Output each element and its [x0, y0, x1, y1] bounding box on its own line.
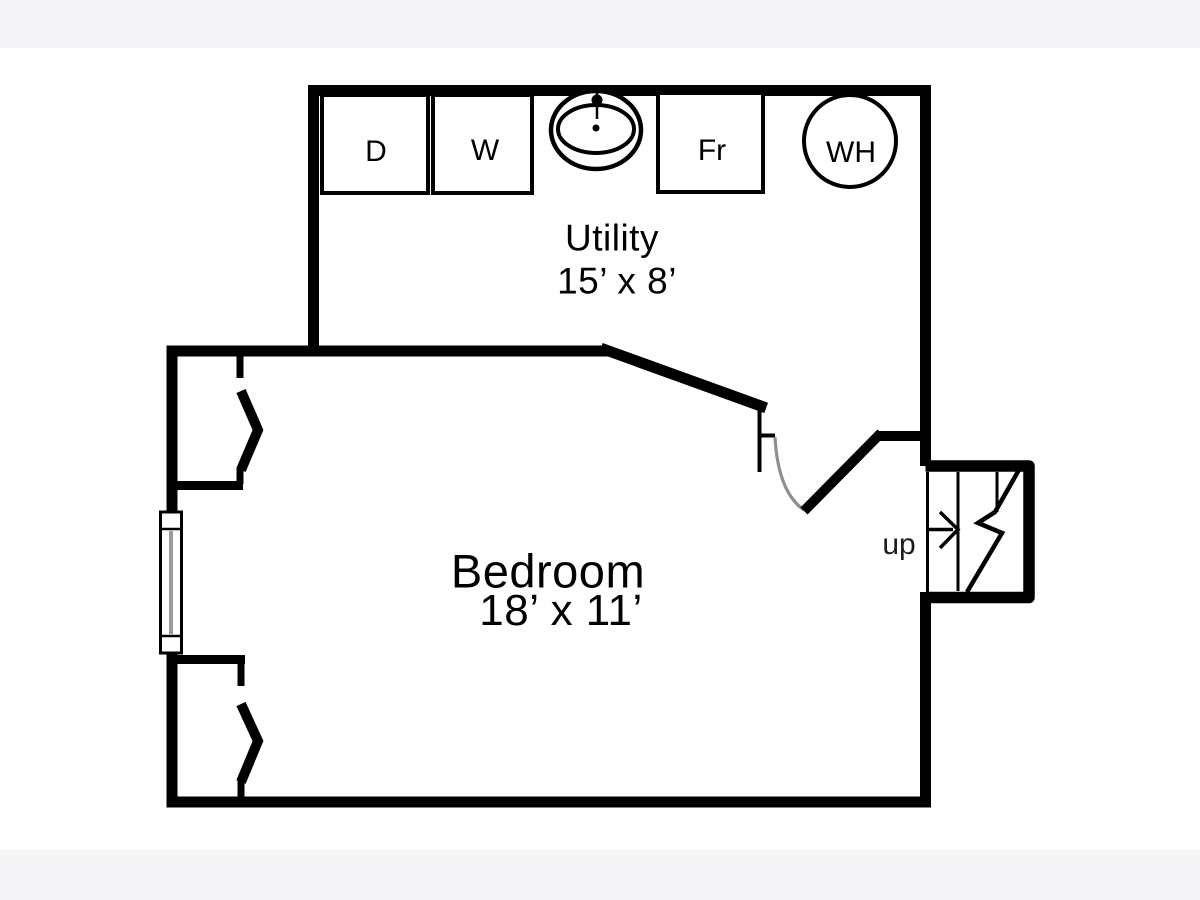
bifold-door-icon	[241, 704, 258, 782]
stair-break-line	[967, 468, 1020, 592]
freezer-label: Fr	[698, 136, 726, 166]
faucet-icon	[592, 95, 603, 106]
water-heater-label: WH	[826, 138, 876, 168]
window	[161, 512, 182, 653]
closet-top	[170, 356, 258, 486]
bedroom-room-dimensions: 18’ x 11’	[479, 589, 642, 633]
drain-dot	[593, 125, 600, 132]
laundry-tub-icon	[551, 91, 641, 169]
walls	[167, 85, 932, 808]
floor-plan-page: D W Fr WH Utility 15’ x 8’ Bedroom 18’ x…	[0, 0, 1200, 900]
utility-room-dimensions: 15’ x 8’	[557, 263, 677, 300]
stairs	[926, 466, 1030, 598]
diagonal-wall	[606, 350, 761, 406]
appliances	[322, 91, 896, 193]
door-swing-arc	[775, 437, 804, 510]
door-leaf	[804, 433, 881, 511]
utility-room-name: Utility	[565, 220, 659, 257]
floor-plan-drawing	[0, 0, 1200, 900]
bedroom-door	[759, 406, 881, 511]
bifold-door-icon	[241, 391, 258, 470]
closet-bottom	[168, 660, 258, 801]
washer-label: W	[471, 136, 499, 166]
stairs-up-label: up	[882, 530, 915, 560]
dryer-label: D	[365, 137, 387, 167]
